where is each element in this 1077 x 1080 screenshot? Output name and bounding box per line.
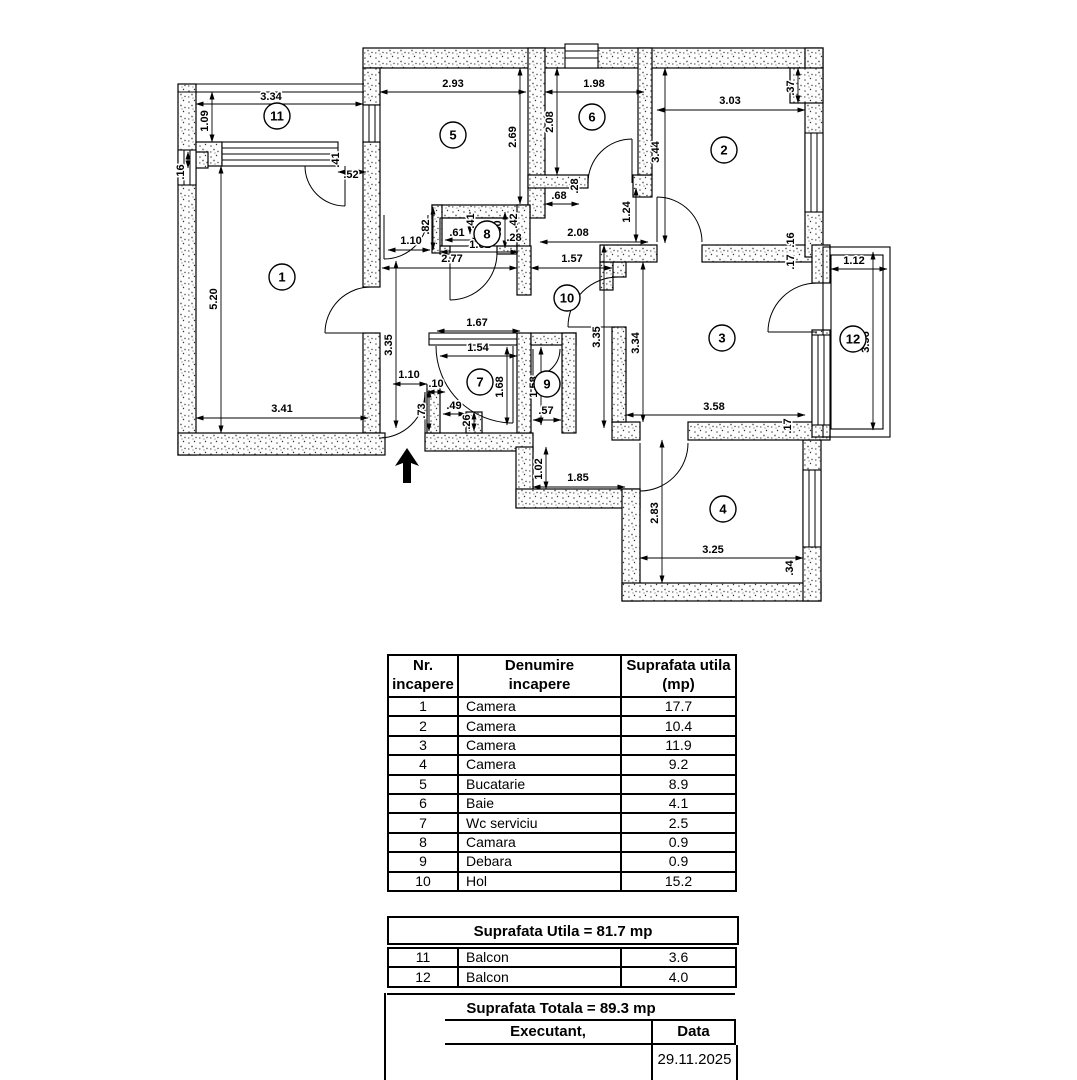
table-row: 8Camara0.9 (388, 833, 736, 852)
wall (600, 262, 613, 290)
window-shaft (565, 44, 598, 68)
room-area: 0.9 (621, 833, 736, 852)
table-row: 1Camera17.7 (388, 697, 736, 716)
dim-label: 1.09 (199, 110, 211, 131)
room-nr: 12 (388, 967, 458, 986)
room-area-table: Nr.incapere Denumireincapere Suprafata u… (387, 654, 737, 892)
dim-label: 1.57 (561, 253, 582, 265)
table-row: 10Hol15.2 (388, 872, 736, 891)
room-number: 4 (719, 502, 727, 517)
dim-label: 3.03 (719, 95, 740, 107)
executant-label: Executant, (445, 1021, 653, 1043)
wall (612, 422, 640, 440)
room-name: Camera (458, 697, 621, 716)
room-name: Bucatarie (458, 775, 621, 794)
dim-label: 2.69 (507, 126, 519, 147)
wall (363, 142, 380, 287)
dim-label: .10 (428, 378, 443, 390)
dim-label: .68 (551, 190, 566, 202)
dim-label: .17 (782, 418, 794, 433)
north-arrow (395, 448, 419, 483)
room-nr: 4 (388, 755, 458, 774)
room-number: 10 (560, 291, 574, 306)
room-nr: 3 (388, 736, 458, 755)
room-name: Camera (458, 716, 621, 735)
room-number: 11 (270, 109, 284, 124)
dim-label: 3.25 (702, 544, 723, 556)
dim-label: 3.35 (591, 326, 603, 347)
room-number: 12 (846, 332, 860, 347)
door-arc (325, 287, 371, 333)
wall (812, 245, 830, 283)
dim-label: 3.34 (630, 331, 642, 353)
wall (562, 333, 576, 433)
dim-label: 2.83 (649, 502, 661, 523)
room-name: Hol (458, 872, 621, 891)
dim-label: .41 (330, 152, 342, 167)
subtotal-band: Suprafata Utila = 81.7 mp (387, 916, 739, 945)
wall-pier (517, 246, 531, 295)
wall (600, 245, 657, 262)
table-row: 7Wc serviciu2.5 (388, 813, 736, 832)
table-row: 11Balcon3.6 (388, 948, 736, 967)
wall (196, 152, 208, 168)
room-area: 10.4 (621, 716, 736, 735)
room-area: 3.6 (621, 948, 736, 967)
dim-label: 1.10 (398, 369, 419, 381)
dim-label: 1.24 (621, 200, 633, 222)
data-label: Data (653, 1021, 734, 1043)
room-area: 8.9 (621, 775, 736, 794)
table-row: 2Camera10.4 (388, 716, 736, 735)
room-area: 4.1 (621, 794, 736, 813)
room-nr: 8 (388, 833, 458, 852)
table-header-row: Nr.incapere Denumireincapere Suprafata u… (388, 655, 736, 697)
wall (178, 433, 385, 455)
dim-label: .16 (785, 232, 797, 247)
room-number: 9 (543, 377, 550, 392)
dim-label: 2.08 (567, 227, 588, 239)
room-nr: 1 (388, 697, 458, 716)
dim-label: 1.68 (494, 376, 506, 397)
wall (688, 422, 830, 440)
door-arc (768, 283, 817, 332)
window (803, 470, 821, 547)
dim-label: .41 (465, 213, 477, 228)
room-name: Debara (458, 852, 621, 871)
wall (528, 48, 545, 218)
dim-label: .28 (569, 178, 581, 193)
dim-label: .26 (461, 414, 473, 429)
room-number: 5 (449, 128, 456, 143)
door-arc (657, 197, 702, 242)
dim-label: .57 (538, 405, 553, 417)
signature-header: Executant, Data (445, 1019, 736, 1045)
dim-label: 3.41 (271, 403, 292, 415)
floorplan-page: 3.341.09.165.203.41.41.522.932.691.982.0… (0, 0, 1077, 1080)
room-number: 6 (588, 110, 595, 125)
dim-label: .49 (446, 400, 461, 412)
room-area: 0.9 (621, 852, 736, 871)
dim-label: .42 (508, 213, 520, 228)
dim-label: .28 (506, 232, 521, 244)
wall (612, 327, 626, 422)
room-nr: 10 (388, 872, 458, 891)
total-band: Suprafata Totala = 89.3 mp (387, 993, 735, 1021)
dim-label: 1.54 (467, 342, 489, 354)
dim-label: 3.34 (260, 91, 282, 103)
room-nr: 7 (388, 813, 458, 832)
dim-label: .34 (784, 559, 796, 575)
dim-label: 2.77 (441, 253, 462, 265)
date-cell: 29.11.2025 (651, 1045, 738, 1080)
room-numbers: 123456789101112 (264, 103, 866, 522)
dim-label: .52 (343, 169, 358, 181)
room-number: 1 (278, 270, 285, 285)
room-nr: 9 (388, 852, 458, 871)
room-area: 4.0 (621, 967, 736, 986)
room-number: 7 (476, 375, 483, 390)
dim-label: .16 (175, 164, 187, 179)
room-name: Balcon (458, 967, 621, 986)
dim-label: 2.08 (544, 111, 556, 132)
wall (622, 583, 821, 601)
door-arc (588, 139, 632, 183)
window (812, 335, 830, 425)
room-area: 2.5 (621, 813, 736, 832)
room-number: 2 (720, 143, 727, 158)
room-area: 11.9 (621, 736, 736, 755)
table-row: 9Debara0.9 (388, 852, 736, 871)
room-name: Balcon (458, 948, 621, 967)
dim-label: 2.93 (442, 78, 463, 90)
dim-label: 3.35 (383, 334, 395, 355)
col-header-denumire: Denumireincapere (458, 655, 621, 697)
door-arc (640, 443, 688, 491)
table-row: 5Bucatarie8.9 (388, 775, 736, 794)
table-row: 6Baie4.1 (388, 794, 736, 813)
room-name: Baie (458, 794, 621, 813)
room-number: 3 (718, 331, 725, 346)
dim-label: 1.02 (533, 458, 545, 479)
room-nr: 6 (388, 794, 458, 813)
col-header-suprafata: Suprafata utila(mp) (621, 655, 736, 697)
dim-label: 5.20 (208, 288, 220, 309)
dim-label: 1.10 (400, 235, 421, 247)
wall (497, 246, 517, 254)
wall (363, 68, 380, 105)
dim-label: .61 (449, 227, 464, 239)
dim-label: .37 (785, 80, 797, 95)
room-area: 15.2 (621, 872, 736, 891)
room-nr: 2 (388, 716, 458, 735)
balcony-table: 11Balcon3.6 12Balcon4.0 (387, 947, 737, 988)
dim-label: 1.12 (843, 255, 864, 267)
room-nr: 5 (388, 775, 458, 794)
dim-label: 1.98 (583, 78, 604, 90)
dim-label: .82 (420, 219, 432, 234)
room-name: Camera (458, 736, 621, 755)
window (805, 133, 823, 212)
room-name: Camara (458, 833, 621, 852)
dim-label: .17 (785, 254, 797, 269)
wall (612, 262, 626, 277)
dim-label: .73 (416, 403, 428, 418)
room-number: 8 (483, 227, 490, 242)
dim-label: 3.58 (703, 401, 724, 413)
room-nr: 11 (388, 948, 458, 967)
table-left-border (384, 993, 386, 1080)
room-name: Wc serviciu (458, 813, 621, 832)
dim-label: 1.67 (466, 317, 487, 329)
table-row: 4Camera9.2 (388, 755, 736, 774)
table-row: 3Camera11.9 (388, 736, 736, 755)
col-header-nr: Nr.incapere (388, 655, 458, 697)
table-row: 12Balcon4.0 (388, 967, 736, 986)
window (363, 105, 380, 142)
dim-label: 3.44 (650, 140, 662, 162)
wall (178, 84, 196, 455)
dim-label: 1.85 (567, 472, 588, 484)
room-area: 9.2 (621, 755, 736, 774)
room-area: 17.7 (621, 697, 736, 716)
room-name: Camera (458, 755, 621, 774)
